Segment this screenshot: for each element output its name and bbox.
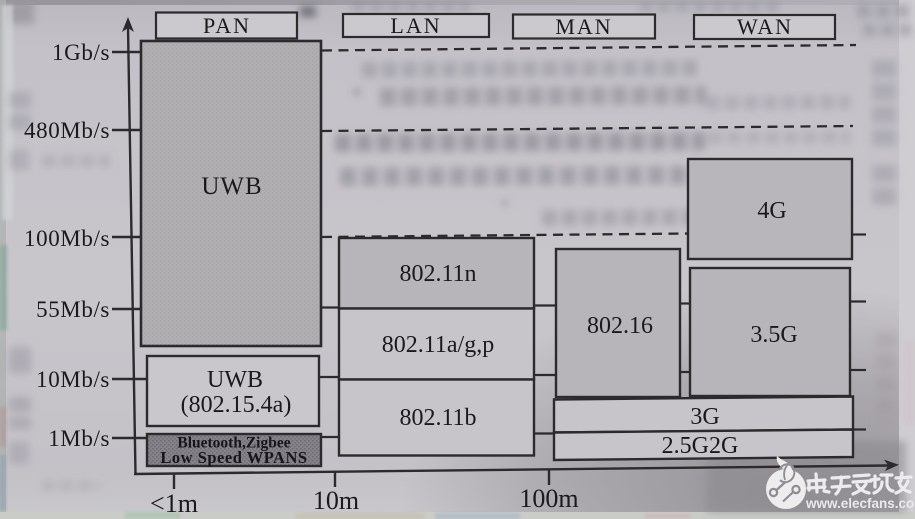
svg-text:3.5G: 3.5G: [750, 322, 797, 348]
svg-text:(802.15.4a): (802.15.4a): [181, 392, 292, 418]
svg-text:10m: 10m: [313, 486, 359, 515]
svg-text:802.11n: 802.11n: [399, 261, 476, 287]
svg-text:2.5G2G: 2.5G2G: [662, 433, 739, 459]
svg-text:1Gb/s: 1Gb/s: [52, 40, 110, 65]
svg-text:PAN: PAN: [203, 13, 251, 38]
svg-text:www.elecfans.com: www.elecfans.com: [805, 496, 915, 511]
svg-text:WAN: WAN: [737, 14, 793, 39]
svg-text:802.11b: 802.11b: [399, 405, 476, 431]
svg-text:10Mb/s: 10Mb/s: [36, 367, 110, 392]
svg-text:55Mb/s: 55Mb/s: [36, 297, 110, 322]
svg-text:4G: 4G: [757, 198, 786, 224]
svg-text:100m: 100m: [519, 484, 578, 513]
svg-text:UWB: UWB: [207, 367, 263, 393]
svg-text:MAN: MAN: [555, 14, 612, 39]
svg-text:480Mb/s: 480Mb/s: [24, 118, 110, 143]
svg-text:1Mb/s: 1Mb/s: [48, 426, 110, 451]
svg-text:100Mb/s: 100Mb/s: [24, 226, 110, 251]
svg-text:802.16: 802.16: [587, 313, 653, 339]
svg-text:Low Speed WPANS: Low Speed WPANS: [160, 448, 307, 467]
svg-text:UWB: UWB: [201, 173, 262, 200]
svg-text:802.11a/g,p: 802.11a/g,p: [382, 332, 494, 358]
svg-text:3G: 3G: [690, 404, 719, 430]
svg-text:LAN: LAN: [390, 13, 441, 38]
svg-text:<1m: <1m: [150, 489, 198, 518]
